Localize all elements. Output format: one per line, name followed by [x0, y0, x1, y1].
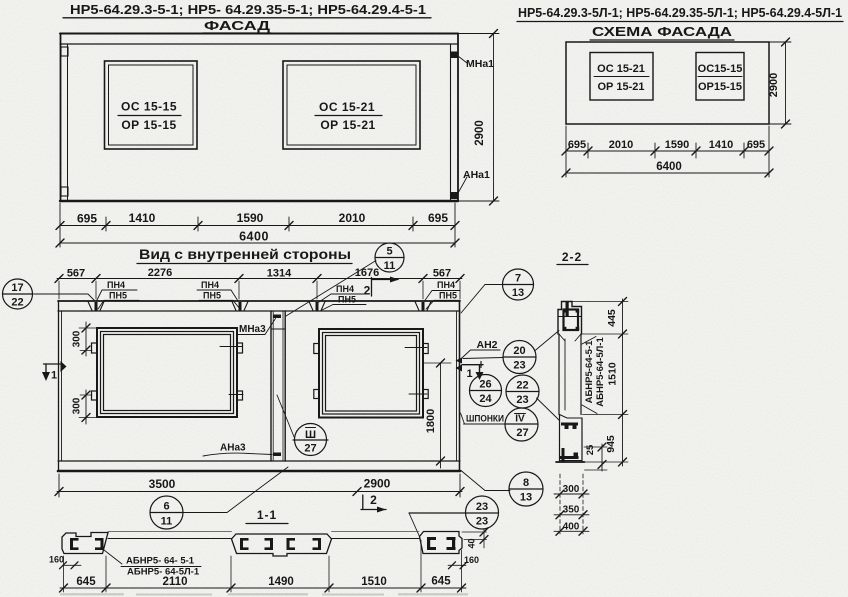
svg-text:2: 2: [364, 284, 371, 298]
svg-text:2900: 2900: [768, 73, 780, 97]
svg-text:1314: 1314: [267, 268, 292, 280]
svg-text:МНа1: МНа1: [466, 58, 494, 70]
svg-text:40: 40: [467, 538, 477, 548]
svg-text:400: 400: [563, 522, 580, 533]
svg-text:Ш: Ш: [305, 429, 316, 441]
svg-text:645: 645: [431, 576, 451, 588]
svg-text:22: 22: [516, 380, 528, 392]
svg-text:ОР 15-15: ОР 15-15: [121, 118, 176, 132]
svg-text:АН2: АН2: [477, 339, 498, 351]
svg-text:1490: 1490: [268, 576, 294, 588]
svg-text:2: 2: [370, 493, 377, 507]
svg-text:11: 11: [161, 516, 173, 528]
svg-text:Вид с внутренней стороны: Вид с внутренней стороны: [139, 247, 351, 262]
svg-text:АНа1: АНа1: [463, 169, 490, 181]
svg-text:ПН5: ПН5: [109, 291, 127, 301]
svg-text:IV: IV: [515, 414, 525, 425]
svg-text:300: 300: [72, 397, 83, 414]
svg-text:645: 645: [76, 576, 96, 588]
svg-text:ОС 15-21: ОС 15-21: [319, 100, 375, 114]
svg-text:5: 5: [386, 246, 392, 258]
svg-text:2900: 2900: [474, 120, 486, 146]
svg-text:ОР15-15: ОР15-15: [698, 81, 742, 93]
svg-text:17: 17: [11, 282, 23, 294]
svg-text:ПН4: ПН4: [107, 280, 125, 290]
svg-text:1: 1: [466, 368, 472, 380]
svg-text:1800: 1800: [425, 409, 437, 433]
svg-text:АБНР5-64-5-1: АБНР5-64-5-1: [584, 340, 595, 404]
svg-text:695: 695: [747, 139, 765, 151]
svg-text:АНа3: АНа3: [220, 443, 246, 454]
svg-text:ОС 15-15: ОС 15-15: [121, 100, 177, 114]
svg-text:ФАСАД: ФАСАД: [204, 19, 270, 33]
svg-text:350: 350: [563, 505, 580, 516]
svg-text:300: 300: [563, 484, 580, 495]
svg-text:1410: 1410: [129, 211, 156, 225]
svg-text:1510: 1510: [361, 576, 387, 588]
svg-text:6400: 6400: [656, 161, 682, 173]
svg-text:11: 11: [384, 260, 396, 272]
svg-text:27: 27: [304, 443, 316, 455]
svg-text:ОС15-15: ОС15-15: [698, 63, 743, 75]
svg-text:13: 13: [512, 287, 524, 299]
svg-text:ПН5: ПН5: [439, 291, 457, 301]
svg-text:2110: 2110: [163, 576, 188, 588]
svg-text:26: 26: [479, 379, 491, 391]
svg-text:ОС 15-21: ОС 15-21: [597, 63, 645, 75]
svg-text:445: 445: [606, 309, 618, 327]
svg-text:24: 24: [479, 393, 492, 405]
svg-text:695: 695: [428, 211, 448, 225]
svg-text:567: 567: [67, 268, 85, 280]
svg-text:ПН4: ПН4: [201, 280, 219, 290]
svg-text:23: 23: [476, 501, 488, 513]
svg-text:2-2: 2-2: [562, 250, 582, 264]
svg-text:НР5-64.29.3-5-1; НР5- 64.29.35: НР5-64.29.3-5-1; НР5- 64.29.35-5-1; НР5-…: [70, 3, 426, 17]
svg-text:945: 945: [605, 435, 617, 453]
svg-text:23: 23: [513, 360, 525, 372]
svg-text:300: 300: [72, 330, 83, 347]
svg-text:АБНР5- 64- 5-1: АБНР5- 64- 5-1: [126, 556, 195, 567]
svg-text:3500: 3500: [149, 477, 176, 491]
svg-text:ПН4: ПН4: [336, 284, 354, 294]
svg-text:695: 695: [568, 139, 586, 151]
svg-text:1: 1: [51, 370, 57, 382]
svg-text:2276: 2276: [148, 267, 172, 279]
svg-text:ПН4: ПН4: [437, 280, 455, 290]
svg-text:2010: 2010: [609, 139, 633, 151]
svg-text:1-1: 1-1: [257, 508, 277, 522]
svg-text:2900: 2900: [364, 477, 391, 491]
svg-text:ШПОНКИ: ШПОНКИ: [466, 414, 504, 425]
svg-text:6400: 6400: [239, 230, 269, 244]
svg-text:1510: 1510: [607, 362, 619, 386]
svg-text:ОР 15-21: ОР 15-21: [597, 81, 644, 93]
svg-text:ПН5: ПН5: [203, 291, 221, 301]
svg-text:13: 13: [520, 492, 532, 504]
svg-text:6: 6: [163, 501, 169, 513]
svg-text:1410: 1410: [709, 139, 733, 151]
svg-text:1676: 1676: [355, 267, 379, 279]
svg-text:1590: 1590: [237, 211, 264, 225]
svg-text:7: 7: [515, 273, 521, 285]
svg-text:ОР 15-21: ОР 15-21: [320, 118, 375, 132]
svg-text:2010: 2010: [339, 211, 366, 225]
svg-text:22: 22: [11, 297, 23, 309]
svg-text:160: 160: [464, 555, 479, 565]
svg-text:НР5-64.29.3-5Л-1; НР5-64.29.35: НР5-64.29.3-5Л-1; НР5-64.29.35-5Л-1; НР5…: [518, 6, 842, 20]
svg-text:ПН5: ПН5: [338, 295, 356, 305]
svg-text:695: 695: [77, 212, 97, 226]
svg-text:8: 8: [523, 477, 529, 489]
svg-text:МНа3: МНа3: [239, 324, 266, 335]
svg-text:25: 25: [585, 444, 596, 455]
svg-text:СХЕМА ФАСАДА: СХЕМА ФАСАДА: [592, 25, 732, 39]
svg-text:27: 27: [516, 427, 528, 439]
svg-text:23: 23: [476, 516, 488, 528]
svg-text:20: 20: [513, 345, 525, 357]
svg-text:АБНР5-64-5Л-1: АБНР5-64-5Л-1: [595, 337, 606, 407]
svg-text:160: 160: [49, 555, 64, 565]
svg-text:23: 23: [516, 394, 528, 406]
svg-text:1590: 1590: [665, 139, 689, 151]
svg-text:567: 567: [433, 268, 451, 280]
